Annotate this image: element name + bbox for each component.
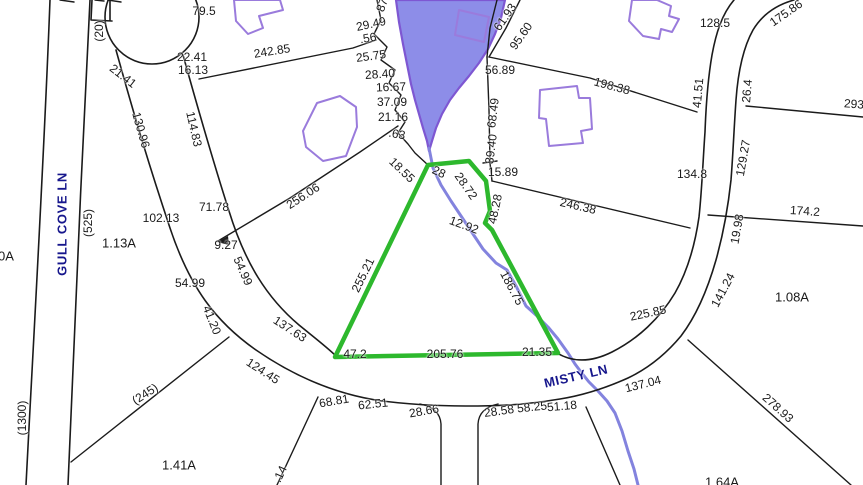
dimension-label-95.60: 95.60 — [507, 20, 534, 51]
street-label-gull-cove-ln: GULL COVE LN — [56, 172, 69, 276]
area-label-1.13a: 1.13A — [102, 237, 136, 250]
dimension-label-16.13: 16.13 — [178, 64, 208, 76]
dimension-label-242.85: 242.85 — [253, 42, 291, 60]
dimension-label-18.55: 18.55 — [387, 155, 417, 184]
fragment-label-.14: .14 — [271, 464, 289, 484]
dimension-label-28.66: 28.66 — [408, 402, 440, 419]
dimension-label-39.40: 39.40 — [483, 133, 499, 164]
dimension-label-102.13: 102.13 — [143, 212, 180, 224]
dimension-label-37.09: 37.09 — [377, 96, 407, 108]
dimension-label-25.75: 25.75 — [355, 48, 386, 64]
dimension-label-56.89: 56.89 — [485, 64, 515, 76]
reference-label-525: (525) — [82, 209, 94, 237]
dimension-label-130.96: 130.96 — [130, 111, 152, 150]
dimension-label-141.24: 141.24 — [709, 271, 737, 309]
dimension-label-21.16: 21.16 — [378, 111, 408, 123]
area-label-1.41a: 1.41A — [162, 459, 196, 472]
dimension-label-58.25: 58.25 — [516, 399, 547, 414]
dimension-label-21.41: 21.41 — [107, 62, 138, 90]
dimension-label-255.21: 255.21 — [350, 256, 377, 294]
dimension-label-28.40: 28.40 — [365, 67, 396, 81]
dimension-label-28.72: 28.72 — [452, 170, 479, 201]
dimension-label-9.27: 9.27 — [214, 239, 237, 251]
dimension-label-28: 28 — [430, 164, 447, 181]
dimension-label-134.8: 134.8 — [677, 168, 707, 180]
dimension-label-48.28: 48.28 — [486, 193, 504, 225]
fragment-label-87: 87 — [374, 0, 390, 13]
area-label-1.08a: 1.08A — [775, 291, 809, 304]
dimension-label-225.85: 225.85 — [629, 303, 667, 322]
dimension-label-62.51: 62.51 — [357, 396, 388, 411]
dimension-label-71.78: 71.78 — [199, 201, 229, 213]
dimension-label-21.35: 21.35 — [522, 346, 552, 358]
area-label-1.64a: 1.64A — [705, 476, 739, 485]
dimension-label-26.4: 26.4 — [740, 79, 754, 103]
dimension-label-41.51: 41.51 — [691, 78, 706, 109]
street-label-misty-ln: MISTY LN — [543, 362, 609, 389]
dimension-label-198.38: 198.38 — [593, 75, 632, 96]
reference-label-1300: (1300) — [16, 401, 28, 436]
dimension-label-137.04: 137.04 — [624, 374, 663, 395]
dimension-label-68.49: 68.49 — [485, 97, 501, 128]
dimension-label-175.86: 175.86 — [768, 0, 805, 28]
dimension-label-256.06: 256.06 — [284, 181, 321, 211]
dimension-label-186.75: 186.75 — [498, 269, 526, 307]
dimension-label-16.67: 16.67 — [376, 80, 406, 93]
dimension-label-246.38: 246.38 — [559, 196, 597, 216]
dimension-label-124.45: 124.45 — [244, 356, 281, 386]
dimension-label-79.5: 79.5 — [192, 5, 215, 17]
dimension-label-28.58: 28.58 — [483, 403, 514, 419]
map-labels: GULL COVE LNMISTY LN(20)(525)(1300)(245)… — [0, 0, 863, 485]
dimension-label-293: 293 — [844, 97, 863, 110]
reference-label-20: (20) — [93, 20, 105, 41]
dimension-label-.56: .56 — [359, 31, 378, 46]
dimension-label-68.81: 68.81 — [318, 392, 350, 409]
dimension-label-129.27: 129.27 — [734, 139, 752, 177]
dimension-label-54.99: 54.99 — [231, 255, 254, 287]
dimension-label-114.83: 114.83 — [184, 110, 204, 148]
dimension-label-12.92: 12.92 — [448, 214, 480, 236]
parcel-map: GULL COVE LNMISTY LN(20)(525)(1300)(245)… — [0, 0, 863, 485]
dimension-label-22.41: 22.41 — [177, 51, 207, 63]
dimension-label-41.20: 41.20 — [201, 304, 223, 336]
dimension-label-51.18: 51.18 — [547, 399, 578, 414]
dimension-label-174.2: 174.2 — [790, 204, 821, 218]
dimension-label-205.76: 205.76 — [427, 348, 464, 360]
reference-label-245: (245) — [130, 381, 160, 406]
dimension-label-.63: .63 — [388, 127, 407, 142]
dimension-label-15.89: 15.89 — [488, 166, 518, 178]
dimension-label-47.2: 47.2 — [343, 348, 366, 360]
dimension-label-19.98: 19.98 — [728, 213, 745, 245]
dimension-label-61.93: 61.93 — [491, 1, 518, 32]
dimension-label-54.99: 54.99 — [175, 277, 205, 289]
area-label-0a: 0A — [0, 250, 14, 263]
dimension-label-278.93: 278.93 — [760, 391, 795, 424]
dimension-label-137.63: 137.63 — [271, 314, 308, 344]
dimension-label-128.5: 128.5 — [700, 17, 730, 29]
